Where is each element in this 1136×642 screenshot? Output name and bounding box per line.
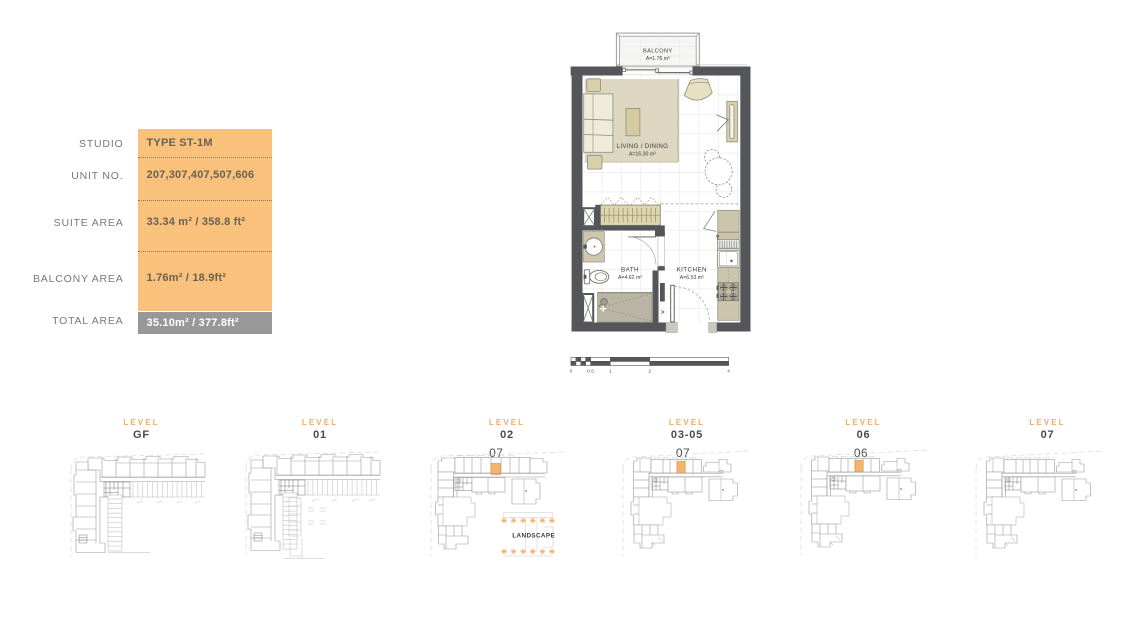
svg-text:A=4.62 m²: A=4.62 m² <box>618 275 642 281</box>
svg-text:KITCHEN: KITCHEN <box>677 267 707 274</box>
svg-text:A=1.76 m²: A=1.76 m² <box>646 56 670 62</box>
svg-text:BALCONY: BALCONY <box>643 48 673 54</box>
svg-text:A=16.30 m²: A=16.30 m² <box>629 152 656 158</box>
svg-text:2: 2 <box>648 369 651 375</box>
svg-text:0: 0 <box>570 369 573 375</box>
svg-text:LANDSCAPE: LANDSCAPE <box>512 533 555 540</box>
svg-text:BATH: BATH <box>621 267 639 274</box>
svg-text:0.5: 0.5 <box>587 369 594 375</box>
svg-text:A=6.53 m²: A=6.53 m² <box>680 275 704 281</box>
svg-text:LIVING / DINING: LIVING / DINING <box>617 143 669 150</box>
svg-text:1: 1 <box>609 369 612 375</box>
svg-text:4: 4 <box>727 369 730 375</box>
